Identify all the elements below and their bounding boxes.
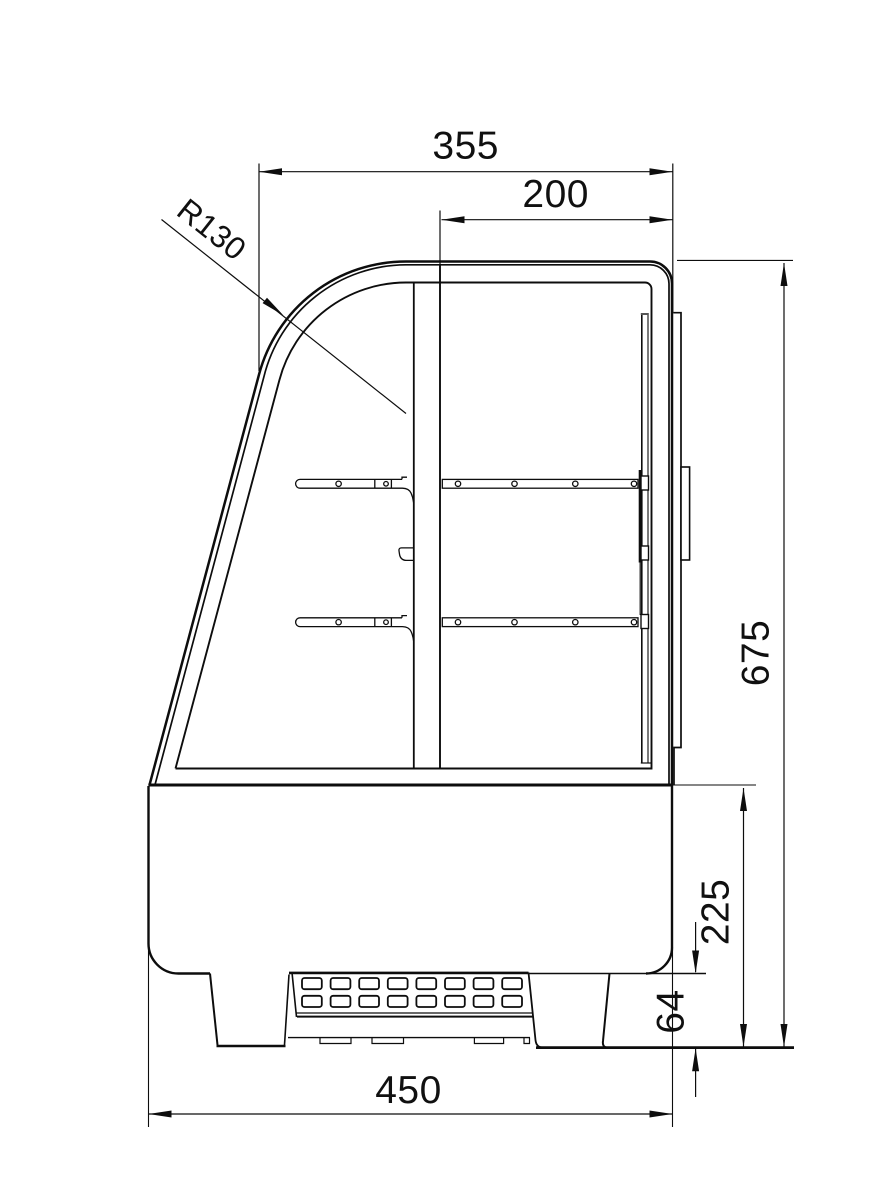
svg-text:200: 200 xyxy=(522,173,589,216)
svg-text:355: 355 xyxy=(432,125,499,168)
svg-text:450: 450 xyxy=(375,1069,442,1112)
svg-text:225: 225 xyxy=(695,879,738,946)
svg-text:64: 64 xyxy=(650,989,693,1033)
svg-text:675: 675 xyxy=(735,620,778,687)
